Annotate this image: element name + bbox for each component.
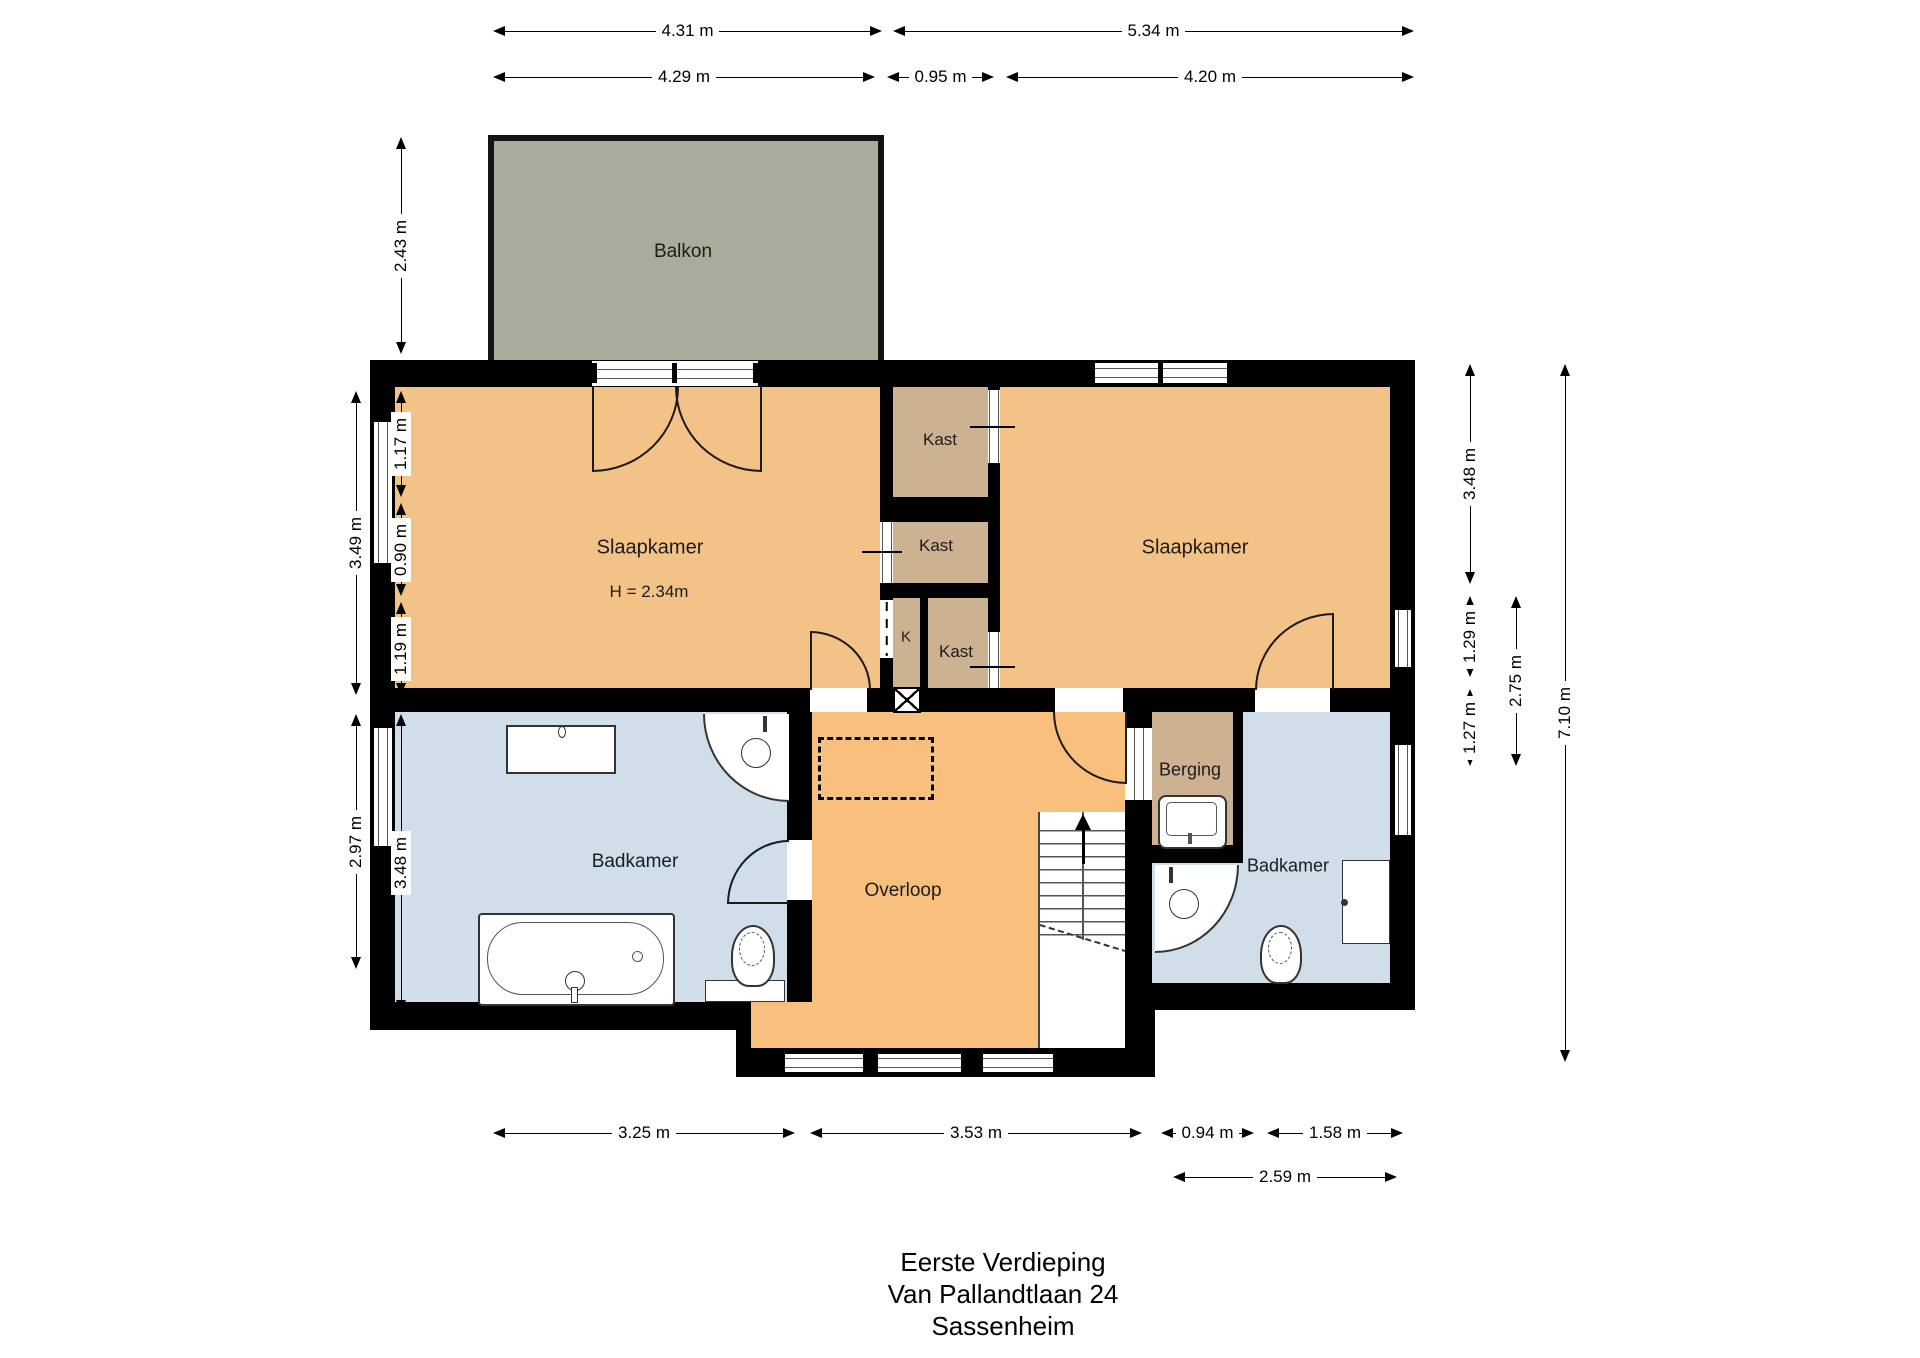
arrowhead-icon [1267, 1128, 1279, 1138]
arrowhead-icon [396, 503, 406, 515]
dimension-7-10-m: 7.10 m [1558, 364, 1572, 1062]
arrowhead-icon [810, 1128, 822, 1138]
bathtub-faucet-stem [571, 987, 578, 1003]
arrowhead-icon [783, 1128, 795, 1138]
arrowhead-icon [493, 72, 505, 82]
arrowhead-icon [396, 602, 406, 614]
window-bottom-3 [983, 1054, 1053, 1072]
arrowhead-icon [396, 342, 406, 354]
arrowhead-icon [1242, 1128, 1254, 1138]
dimension-label: 1.27 m [1460, 696, 1480, 760]
dimension-label: 5.34 m [1122, 21, 1186, 41]
threshold-post [753, 363, 758, 383]
dimension-label: 1.29 m [1460, 605, 1480, 669]
sink-bowl [741, 738, 771, 768]
void-dashed-rect [818, 737, 934, 800]
arrowhead-icon [396, 1000, 406, 1012]
room-label-slaapkamer-left-height: H = 2.34m [610, 582, 689, 602]
wall-k-kast3 [920, 598, 928, 688]
bathtub [478, 913, 675, 1006]
arrowhead-icon [1402, 26, 1414, 36]
door-tick [970, 426, 1015, 428]
dimension-label: 4.29 m [652, 67, 716, 87]
arrowhead-icon [396, 137, 406, 149]
arrowhead-icon [870, 26, 882, 36]
dimension-1-58-m: 1.58 m [1267, 1126, 1403, 1140]
sink-bowl [1169, 889, 1199, 919]
dimension-1-19-m: 1.19 m [394, 602, 408, 695]
threshold-post [592, 363, 597, 383]
arrowhead-icon [396, 485, 406, 497]
dimension-label: 1.19 m [391, 617, 411, 681]
arrowhead-icon [493, 1128, 505, 1138]
arrowhead-icon [1511, 596, 1521, 608]
room-label-slaapkamer-right: Slaapkamer [1142, 537, 1249, 560]
dimension-label: 7.10 m [1555, 681, 1575, 745]
bathtub-drain [632, 951, 643, 962]
arrowhead-icon [1161, 1128, 1173, 1138]
arrowhead-icon [396, 584, 406, 596]
threshold-post [672, 363, 677, 383]
wall-berging-right [1233, 712, 1243, 863]
dimension-label: 3.25 m [612, 1123, 676, 1143]
arrowhead-icon [1173, 1172, 1185, 1182]
berging-sink-inner [1166, 802, 1217, 836]
staircase [1038, 812, 1127, 1048]
dimension-2-43-m: 2.43 m [394, 137, 408, 354]
wall-kast2-k [893, 583, 988, 598]
title-line-city: Sassenheim [703, 1310, 1303, 1342]
dimension-1-17-m: 1.17 m [394, 391, 408, 497]
arrowhead-icon [493, 26, 505, 36]
arrowhead-icon [1465, 364, 1475, 376]
arrowhead-icon [396, 391, 406, 403]
dimension-label: 4.31 m [656, 21, 720, 41]
toilet-bowl [1268, 932, 1292, 964]
arrowhead-icon [396, 714, 406, 726]
wall-bottom-left [370, 1002, 751, 1030]
arrowhead-icon [887, 72, 899, 82]
stair-up-arrow-stem [1082, 826, 1085, 864]
arrowhead-icon [1391, 1128, 1403, 1138]
door-tick [862, 551, 902, 553]
dimension-2-59-m: 2.59 m [1173, 1170, 1397, 1184]
berging-sink [1158, 795, 1227, 849]
floorplan: BalkonSlaapkamerH = 2.34mKastKastKKastSl… [0, 0, 1920, 1358]
arrowhead-icon [1130, 1128, 1142, 1138]
faucet-icon [1169, 867, 1173, 883]
dimension-0-94-m: 0.94 m [1161, 1126, 1254, 1140]
dimension-1-29-m: 1.29 m [1463, 596, 1477, 677]
arrowhead-icon [1385, 1172, 1397, 1182]
folding-door-k [880, 600, 893, 658]
window-bottom-1 [785, 1054, 863, 1072]
room-label-balkon: Balkon [654, 241, 712, 263]
window-left-slaapkamer [374, 422, 392, 563]
window-right-badkamer [1395, 745, 1411, 835]
wall-bottom-right [1147, 983, 1415, 1010]
faucet-icon [763, 716, 767, 732]
toilet-bowl [739, 932, 765, 966]
cabinet-handle [1341, 899, 1348, 906]
arrowhead-icon [1465, 572, 1475, 584]
tap-icon [558, 726, 566, 738]
dimension-3-49-m: 3.49 m [349, 391, 363, 695]
window-bottom-2 [878, 1054, 961, 1072]
dimension-2-97-m: 2.97 m [349, 714, 363, 969]
window-mullion [1158, 363, 1163, 383]
dimension-0-90-m: 0.90 m [394, 503, 408, 596]
room-label-badkamer-left: Badkamer [592, 851, 679, 873]
dimension-label: 3.53 m [944, 1123, 1008, 1143]
room-label-berging: Berging [1159, 760, 1221, 781]
arrowhead-icon [893, 26, 905, 36]
room-label-kast-top: Kast [923, 430, 957, 450]
berging-sink-tap [1188, 833, 1192, 844]
title-line-floor: Eerste Verdieping [703, 1246, 1303, 1278]
dimension-4-29-m: 4.29 m [493, 70, 875, 84]
arrowhead-icon [1006, 72, 1018, 82]
dimension-4-31-m: 4.31 m [493, 24, 882, 38]
dimension-label: 2.59 m [1253, 1167, 1317, 1187]
dimension-label: 3.48 m [391, 831, 411, 895]
arrowhead-icon [1511, 754, 1521, 766]
door-gap-slaapkamer-left [810, 688, 867, 712]
arrowhead-icon [1402, 72, 1414, 82]
toilet-left [731, 925, 775, 987]
plan-title: Eerste Verdieping Van Pallandtlaan 24 Sa… [703, 1246, 1303, 1342]
room-label-kast-bottom: Kast [939, 642, 973, 662]
toilet-right [1260, 925, 1302, 984]
arrowhead-icon [982, 72, 994, 82]
arrowhead-icon [351, 957, 361, 969]
dimension-3-48-m: 3.48 m [394, 714, 408, 1012]
room-label-kast-middle: Kast [919, 536, 953, 556]
dimension-0-95-m: 0.95 m [887, 70, 994, 84]
dimension-label: 3.48 m [1460, 442, 1480, 506]
room-overloop-notch [751, 1002, 812, 1048]
dimension-label: 4.20 m [1178, 67, 1242, 87]
dimension-label: 2.75 m [1506, 649, 1526, 713]
door-berging [1125, 728, 1152, 800]
room-label-overloop: Overloop [864, 880, 941, 902]
arrowhead-icon [351, 683, 361, 695]
room-label-k-closet: K [901, 629, 911, 646]
door-gap-badkamer-left [787, 840, 812, 900]
arrowhead-icon [1560, 1050, 1570, 1062]
dimension-label: 0.95 m [909, 67, 973, 87]
wall-step-right [1130, 983, 1155, 1077]
door-gap-slaapkamer-right-bad [1255, 688, 1330, 712]
shaft-symbol [893, 687, 921, 713]
dimension-1-27-m: 1.27 m [1463, 689, 1477, 766]
window-left-badkamer [374, 728, 392, 846]
wall-top [370, 360, 1415, 387]
dimension-2-75-m: 2.75 m [1509, 596, 1523, 766]
room-label-slaapkamer-left: Slaapkamer [597, 537, 704, 560]
dimension-5-34-m: 5.34 m [893, 24, 1414, 38]
dimension-3-25-m: 3.25 m [493, 1126, 795, 1140]
shower-cabinet [1342, 860, 1390, 944]
wall-kast1-kast2 [893, 497, 988, 522]
wall-right [1390, 360, 1415, 1010]
vanity-counter [506, 725, 616, 774]
arrowhead-icon [396, 683, 406, 695]
room-label-badkamer-right: Badkamer [1247, 856, 1329, 877]
dimension-3-53-m: 3.53 m [810, 1126, 1142, 1140]
window-right-slaapkamer [1395, 610, 1411, 667]
sliding-door-kast-bottom [988, 632, 1000, 688]
arrowhead-icon [863, 72, 875, 82]
arrowhead-icon [1560, 364, 1570, 376]
dimension-label: 2.43 m [391, 214, 411, 278]
dimension-3-48-m: 3.48 m [1463, 364, 1477, 584]
title-line-address: Van Pallandtlaan 24 [703, 1278, 1303, 1310]
door-tick [970, 666, 1015, 668]
dimension-label: 2.97 m [346, 810, 366, 874]
arrowhead-icon [351, 714, 361, 726]
dimension-label: 3.49 m [346, 511, 366, 575]
dimension-label: 1.17 m [391, 412, 411, 476]
door-gap-slaapkamer-right-hall [1055, 688, 1123, 712]
arrowhead-icon [351, 391, 361, 403]
dimension-label: 0.90 m [391, 518, 411, 582]
dimension-label: 0.94 m [1176, 1123, 1240, 1143]
dimension-4-20-m: 4.20 m [1006, 70, 1414, 84]
dimension-label: 1.58 m [1303, 1123, 1367, 1143]
